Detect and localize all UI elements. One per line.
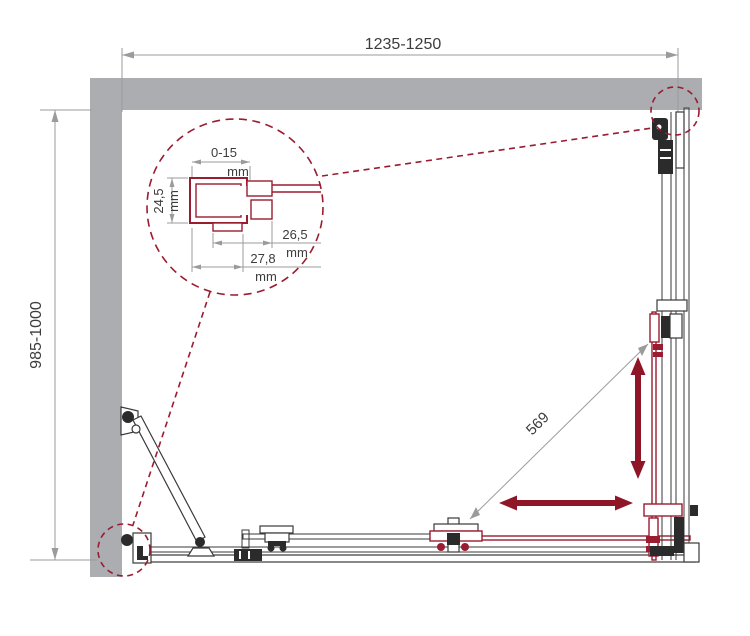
roller: [280, 545, 287, 552]
depth-value: 24,5: [151, 188, 166, 213]
inner-width-value: 26,5: [282, 227, 307, 242]
arrowhead-bottom: [52, 548, 59, 560]
profile-detail-drawing: 0-15 mm 24,5 mm 26,5 mm: [151, 145, 321, 284]
bottom-rail-outer: [135, 555, 695, 562]
carriage-guide: [650, 314, 659, 342]
carriage-plate: [657, 300, 687, 311]
corner-foot: [650, 546, 674, 556]
roller: [268, 545, 275, 552]
right-door-assembly: [644, 108, 699, 562]
entry-dimension-label: 569: [523, 409, 553, 439]
arrowhead-right: [666, 52, 678, 59]
foot-pivot: [195, 537, 205, 547]
slide-arrows: [499, 357, 646, 511]
detail-dimension-adjustment: 0-15 mm: [192, 145, 250, 180]
outer-width-value: 27,8: [250, 251, 275, 266]
arrowhead-left: [122, 52, 134, 59]
carriage-plate: [434, 524, 478, 531]
top-roller-mechanism: [652, 112, 684, 174]
arrowhead-top: [638, 344, 648, 356]
profile-mid-box: [251, 200, 272, 219]
arrowhead: [170, 178, 175, 187]
top-wall: [90, 78, 702, 110]
corner-bracket: [644, 504, 682, 516]
wall-pivot: [122, 411, 134, 423]
carriage-body: [265, 533, 289, 542]
arrowhead-top: [52, 110, 59, 122]
arrowhead: [192, 265, 201, 270]
right-wall-profile: [684, 108, 689, 562]
arrowhead: [170, 214, 175, 223]
wall-profile-knob: [121, 534, 133, 546]
leader-line-top-right: [322, 128, 652, 176]
corner-post: [674, 517, 684, 553]
shower-enclosure-diagram: 1235-1250 985-1000: [0, 0, 750, 636]
depth-unit: mm: [166, 190, 181, 212]
outer-width-unit: mm: [255, 269, 277, 284]
carriage-plate: [260, 526, 293, 533]
profile-outer: [190, 178, 247, 223]
horizontal-slide-arrow: [499, 496, 633, 511]
roller: [437, 543, 445, 551]
carriage-body: [670, 314, 682, 338]
profile-bottom-tab: [213, 223, 242, 231]
arrowhead-bottom: [470, 507, 480, 519]
vertical-slide-arrow: [631, 357, 646, 479]
profile-top-tab: [247, 181, 272, 196]
inner-width-unit: mm: [286, 245, 308, 260]
middle-roller-carriage: [650, 300, 687, 357]
carriage-block: [661, 316, 670, 338]
depth-dimension-label: 985-1000: [28, 301, 45, 369]
entry-dimension: 569: [470, 344, 648, 519]
detail-dimension-depth: 24,5 mm: [151, 178, 188, 223]
bottom-rail-inner: [137, 547, 693, 552]
roller: [646, 536, 660, 543]
arrowhead: [192, 160, 201, 165]
left-wall: [90, 110, 122, 577]
width-dimension-label: 1235-1250: [365, 36, 442, 53]
main-dimension-depth: 985-1000: [28, 110, 97, 560]
adjustment-unit: mm: [227, 164, 249, 179]
roller-carriage-left: [260, 526, 293, 552]
dimension-line: [470, 344, 648, 519]
corner-cap: [684, 543, 699, 562]
bracket-block: [690, 505, 698, 516]
support-bar: [133, 416, 205, 542]
technical-drawing-canvas: 1235-1250 985-1000: [0, 0, 750, 636]
bracket-plate: [676, 112, 684, 168]
carriage-block: [447, 533, 460, 545]
bar-foot-plate: [188, 548, 214, 556]
arrowhead: [234, 265, 243, 270]
roller: [653, 352, 663, 357]
bar-pivot: [132, 425, 140, 433]
arrowhead: [213, 241, 222, 246]
adjustment-value: 0-15: [211, 145, 237, 160]
arrowhead: [263, 241, 272, 246]
roller: [653, 344, 663, 350]
roller: [461, 543, 469, 551]
